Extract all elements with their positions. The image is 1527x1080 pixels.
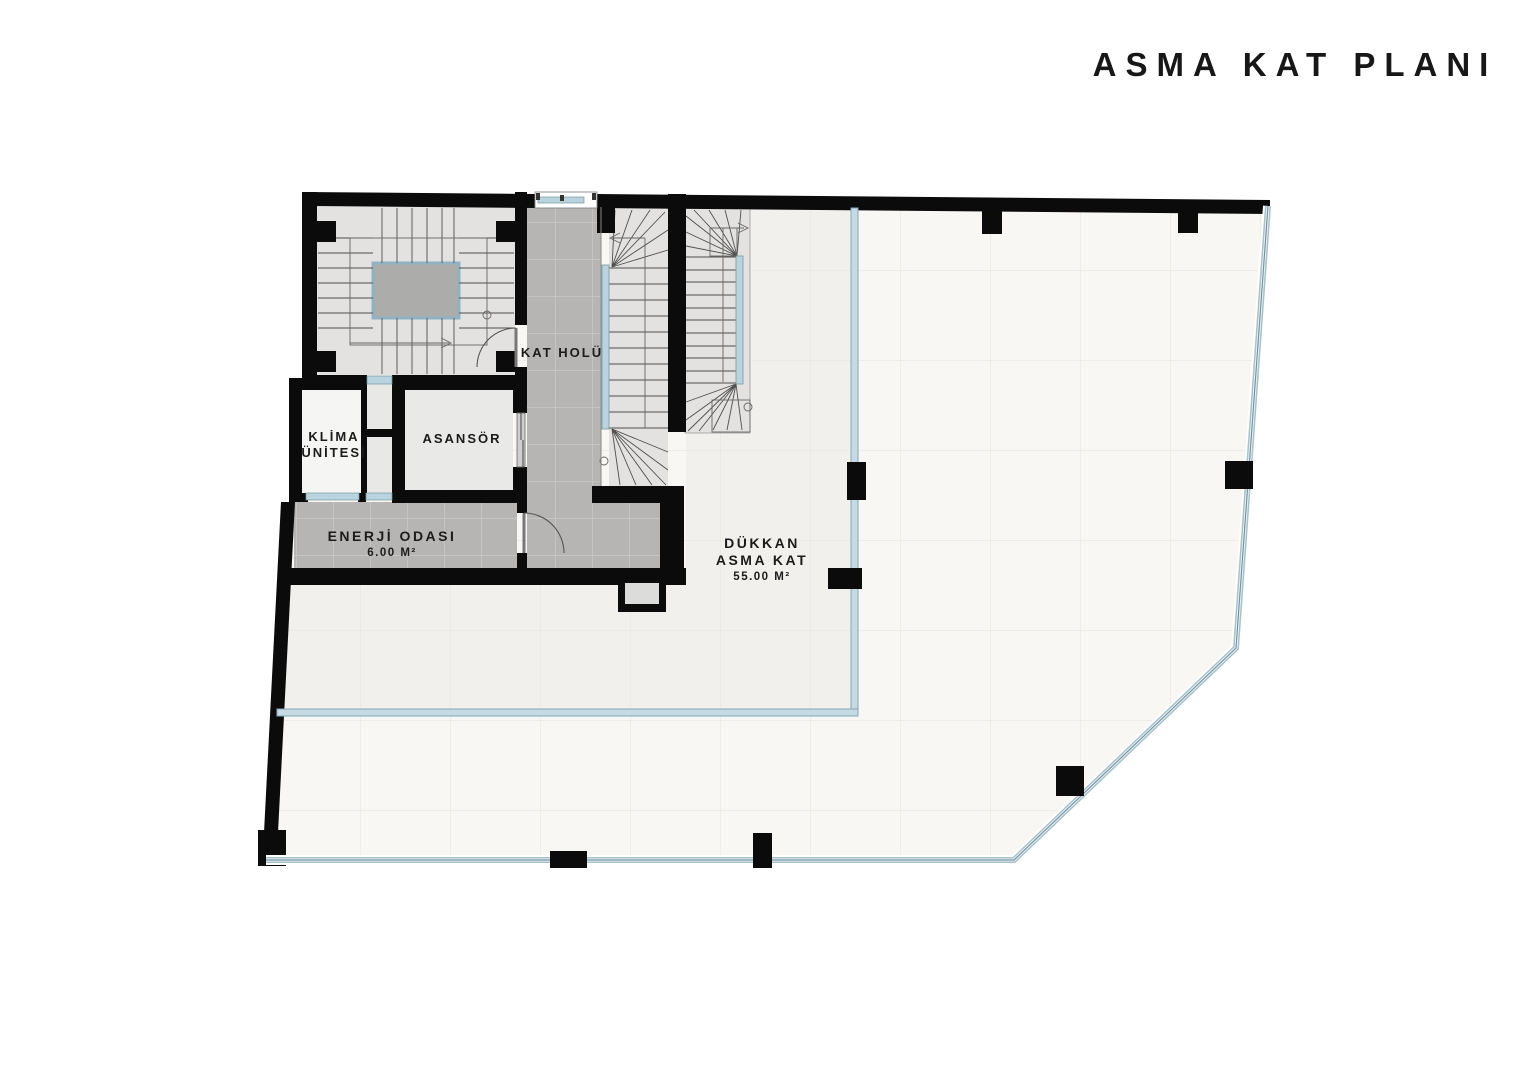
stair-b-glass (736, 256, 743, 384)
stair-a-floor (609, 207, 668, 486)
stairwell-col-tl (317, 221, 336, 242)
plan-title: ASMA KAT PLANI (1093, 46, 1498, 83)
label-dukkan-line2: ASMA KAT (716, 552, 808, 568)
top-wall-left (302, 192, 535, 208)
shaft-cell-top (366, 379, 392, 429)
stairwell-col-tr (496, 221, 515, 242)
label-enerji: ENERJİ ODASI (328, 528, 457, 544)
left-wall-upper (302, 192, 317, 378)
label-enerji-area: 6.00 M² (367, 547, 417, 559)
label-klima-line2: ÜNİTESİ (301, 445, 366, 460)
column-diagonal-glass (1056, 766, 1084, 796)
elevator-right-wall-upper (513, 390, 527, 413)
enerji-bottom-wall (277, 568, 686, 585)
mid-band-wall-left (302, 375, 363, 390)
elevator-bottom-wall (392, 490, 527, 503)
corridor-top-window (535, 192, 597, 208)
corridor-lower-floor (601, 500, 668, 568)
column-right-glass (1225, 461, 1253, 489)
column-bottom-1 (550, 851, 587, 868)
shaft-window (366, 493, 392, 500)
klima-window-post-right (392, 493, 405, 502)
stair-landing (373, 263, 459, 318)
enerji-door-wall-upper (517, 503, 527, 513)
column-top-1 (982, 206, 1002, 234)
stairwell-col-bl (317, 351, 336, 372)
label-kat-holu: KAT HOLÜ (521, 345, 603, 360)
stair-divider-wall (668, 194, 686, 432)
label-asansor: ASANSÖR (422, 431, 501, 446)
column-bottom-2 (753, 833, 772, 868)
klima-left-wall (289, 378, 302, 502)
shaft-wall-left (361, 375, 367, 500)
stairwell-col-br (496, 351, 515, 372)
mid-band-wall-right (392, 375, 527, 390)
shaft-cell-bottom (366, 437, 392, 494)
column-mezzanine-edge-2 (828, 568, 862, 589)
shaft-wall-divider (361, 429, 392, 437)
corridor-top-stub (597, 208, 615, 233)
klima-window (306, 493, 359, 500)
elevator-door (517, 413, 525, 467)
label-klima-line1: KLİMA (308, 429, 359, 444)
floor-plan-canvas: ASMA KAT PLANI KAT HOLÜ ASANSÖR KLİMA ÜN… (0, 0, 1527, 1080)
floor-plan-svg: ASMA KAT PLANI KAT HOLÜ ASANSÖR KLİMA ÜN… (0, 0, 1527, 1080)
duct-box-inner (625, 583, 659, 604)
shaft-wall-right (392, 375, 405, 502)
label-dukkan-line1: DÜKKAN (724, 535, 800, 551)
corridor-floor (527, 207, 601, 583)
label-dukkan-area: 55.00 M² (733, 571, 790, 583)
corridor-left-wall-upper (515, 192, 527, 325)
column-mezzanine-edge-1 (847, 462, 866, 500)
stairwell-shaft-window (367, 376, 392, 384)
column-top-2 (1178, 206, 1198, 233)
